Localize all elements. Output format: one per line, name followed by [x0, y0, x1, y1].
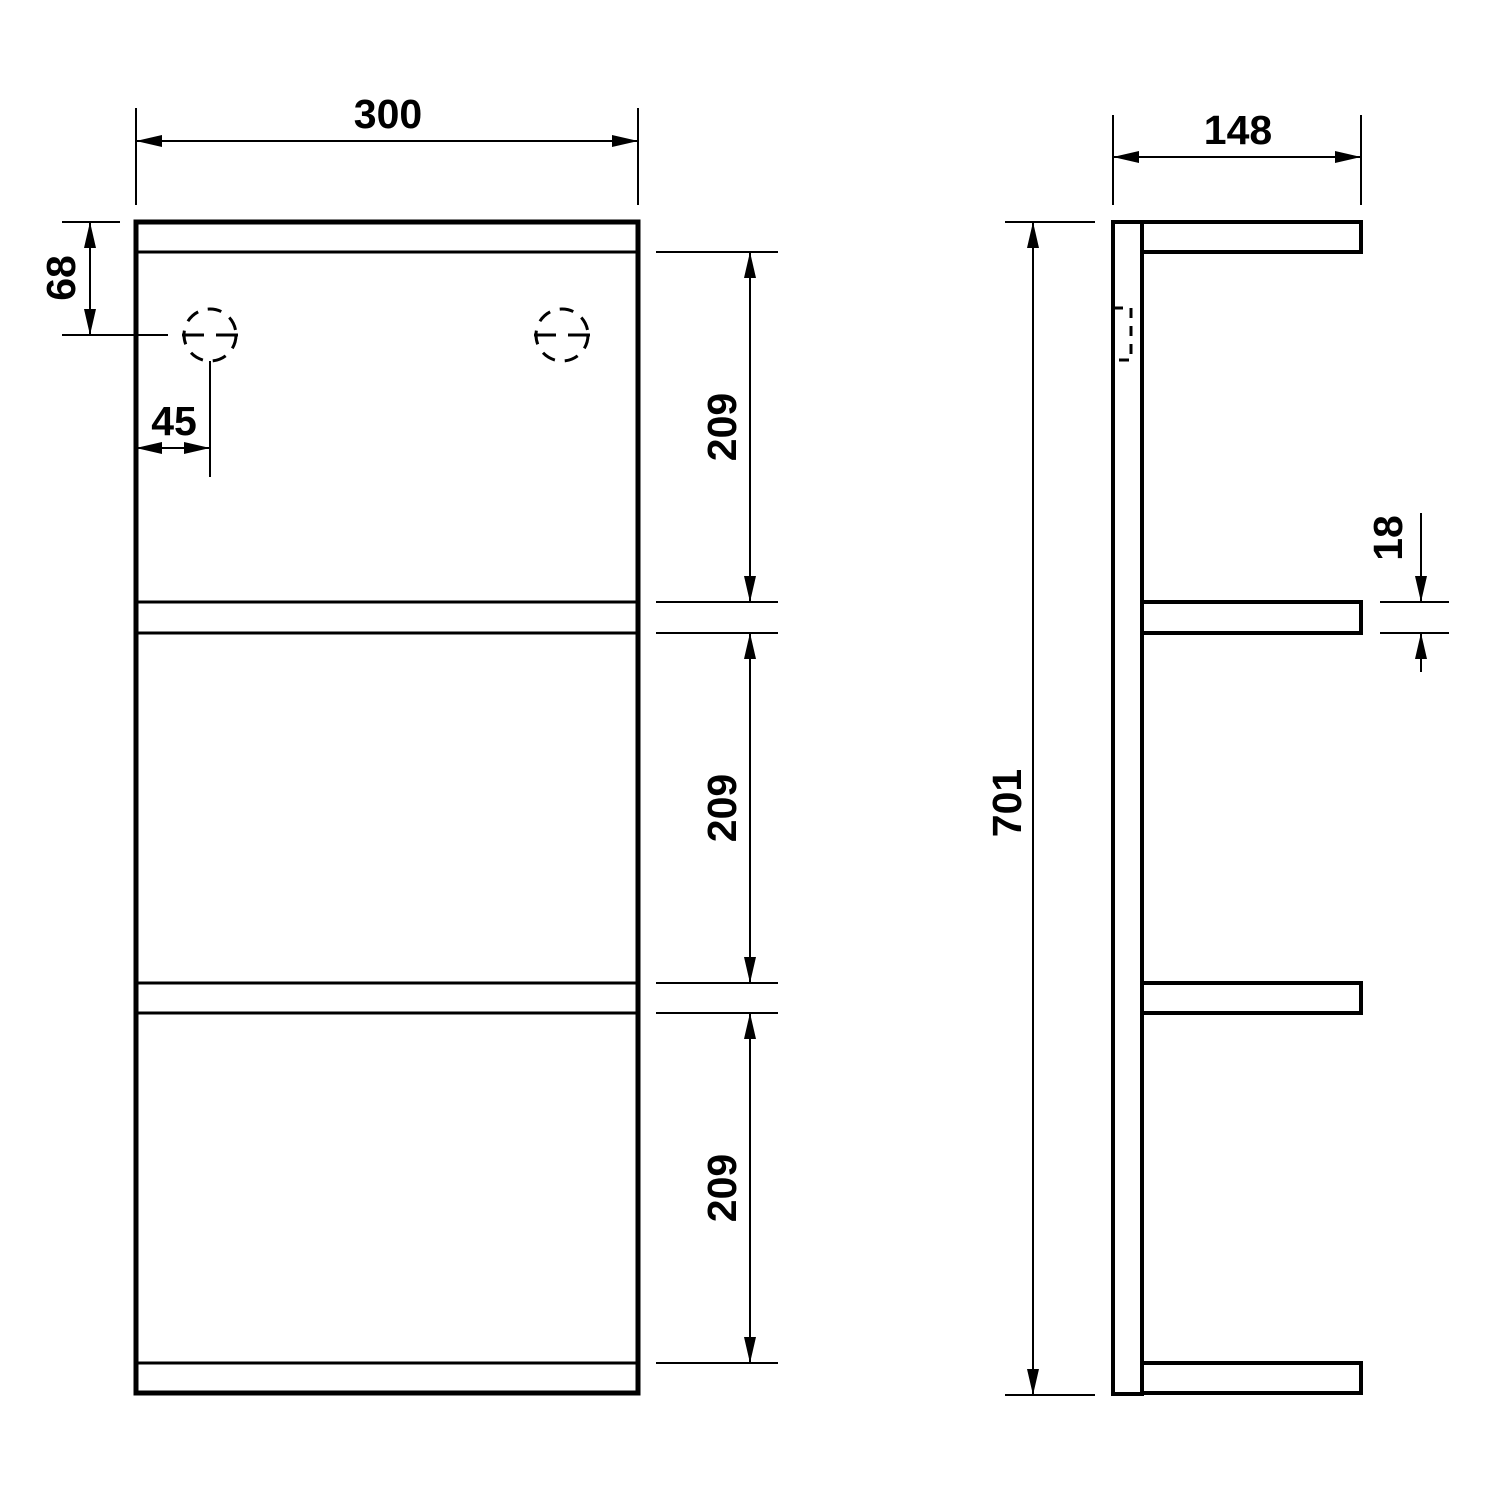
dim-shelf-spacing-top: 209 [656, 252, 778, 602]
dim-209b-label: 209 [699, 774, 745, 842]
front-view [136, 222, 638, 1393]
side-shelf-top [1142, 222, 1361, 252]
drawing-page: 300 68 45 209 209 [0, 0, 1500, 1500]
dim-148-label: 148 [1204, 107, 1272, 153]
dim-hole-top-offset: 68 [38, 222, 168, 335]
mounting-hole-left [182, 309, 238, 477]
dim-68-label: 68 [38, 255, 84, 301]
dim-side-depth: 148 [1113, 107, 1361, 205]
dim-front-width: 300 [136, 91, 638, 205]
dim-hole-left-offset: 45 [136, 398, 210, 448]
mounting-hole-right [534, 309, 590, 361]
front-panel-outline [136, 222, 638, 1393]
side-view [1113, 222, 1361, 1394]
dim-shelf-thickness: 18 [1365, 513, 1449, 672]
keyhole-slot-hidden-outline [1113, 308, 1131, 360]
shelf-technical-drawing: 300 68 45 209 209 [0, 0, 1500, 1500]
side-shelf-bottom [1142, 1363, 1361, 1393]
dim-209c-label: 209 [699, 1154, 745, 1222]
dim-45-label: 45 [151, 398, 197, 444]
dim-shelf-spacing-bottom: 209 [656, 1013, 778, 1363]
dim-18-label: 18 [1365, 515, 1411, 561]
dim-209a-label: 209 [699, 393, 745, 461]
side-shelf-middle2 [1142, 983, 1361, 1013]
dim-701-label: 701 [984, 769, 1030, 837]
side-back-panel [1113, 222, 1142, 1394]
dim-shelf-spacing-middle: 209 [656, 633, 778, 983]
dim-overall-height: 701 [984, 222, 1095, 1395]
dim-300-label: 300 [354, 91, 422, 137]
side-shelf-middle1 [1142, 602, 1361, 633]
